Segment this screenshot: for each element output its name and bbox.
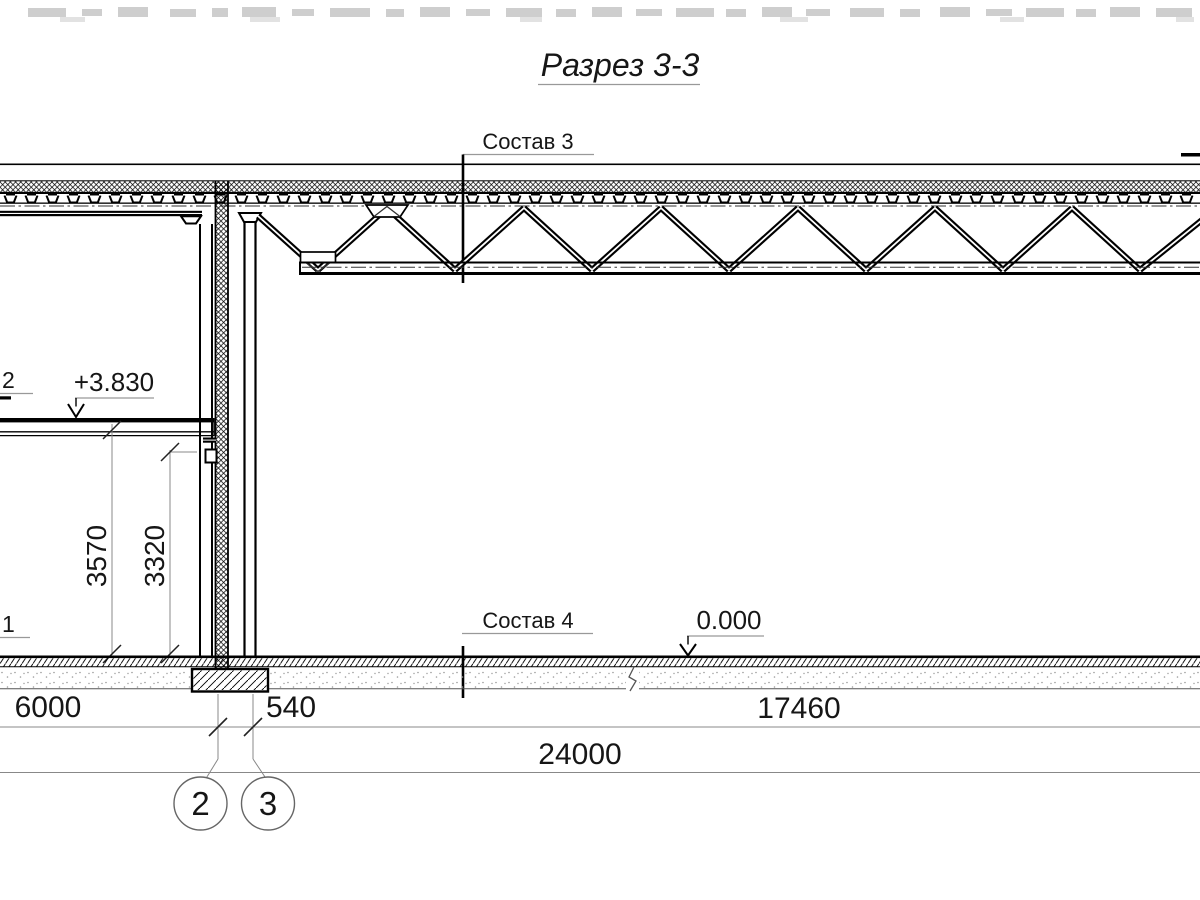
truss-bottom-chord — [300, 262, 1200, 276]
sostav-3-label: Состав 3 — [482, 129, 573, 154]
dim-wall-offset: 540 — [266, 691, 316, 724]
axis-3-leader — [253, 759, 266, 779]
floor-top-line — [0, 656, 1200, 659]
drawing-title: Разрез 3-3 — [538, 47, 700, 85]
vertical-dimension-3570: 3570 — [81, 421, 121, 663]
bottom-chord-bottom-line — [300, 272, 1200, 275]
dim-value: 3570 — [81, 525, 112, 587]
wall-panel — [216, 181, 229, 669]
mezzanine-slab — [0, 418, 217, 463]
vertical-dimension-3320: 3320 — [139, 443, 197, 663]
sostav-4-label: Состав 4 — [482, 608, 573, 633]
wall-hatch — [216, 181, 229, 669]
sostav-2-section-line — [0, 396, 11, 399]
scan-artifacts — [28, 7, 1194, 22]
elevation-mark-ground: 0.000 — [680, 605, 764, 656]
dim-value: 3320 — [139, 525, 170, 587]
title-text: Разрез 3-3 — [541, 47, 700, 83]
foundation-hatch — [194, 671, 267, 691]
floor-screed-hatch — [0, 658, 1200, 666]
beam-web-line — [0, 213, 202, 214]
dim-span-right: 17460 — [757, 692, 840, 725]
beam-end-bracket — [181, 216, 201, 223]
grid-axis-3: 3 — [242, 759, 295, 830]
elevation-mark-mezzanine: +3.830 — [68, 367, 154, 417]
dim-span-left: 6000 — [15, 691, 82, 724]
sostav-1-partial-label: 1 — [2, 611, 15, 637]
elevation-mezzanine-value: +3.830 — [74, 367, 154, 397]
roof-top-line — [0, 164, 1200, 166]
profiled-deck — [0, 194, 1200, 203]
section-drawing: Разрез 3-3 Состав 3 — [0, 0, 1200, 900]
elevation-ground-arrow — [680, 644, 696, 656]
bottom-chord-top-line — [300, 262, 1200, 264]
beam-seat-upper-core — [203, 440, 216, 441]
beam-seat-lower — [206, 450, 217, 463]
section-mark-sostav-2-clipped: 2 — [0, 367, 33, 400]
deck-bottom-line — [0, 203, 1200, 204]
drawing-svg: Разрез 3-3 Состав 3 — [0, 0, 1200, 900]
slab-top-band — [0, 418, 214, 422]
section-mark-sostav-1-clipped: 1 — [0, 611, 30, 638]
roof-truss — [258, 205, 1200, 275]
deck-top-flange-line — [0, 192, 1200, 194]
dimension-row-2: 24000 — [0, 738, 1200, 773]
ground-floor — [0, 656, 1200, 692]
roof-assembly — [0, 164, 1200, 207]
sostav-2-partial-label: 2 — [2, 367, 15, 393]
right-edge-section-tick — [1181, 153, 1200, 157]
roof-insulation-hatch — [0, 181, 1200, 192]
axis-3-label: 3 — [259, 785, 277, 822]
left-roof-beam — [0, 211, 202, 224]
insulation-top-line — [0, 180, 1200, 181]
apex-splice-plate — [366, 205, 408, 217]
axis-2-leader — [206, 759, 218, 779]
floor-base-stipple — [0, 668, 1200, 689]
axis-2-label: 2 — [191, 785, 209, 822]
truss-support-column — [245, 222, 256, 656]
dim-total: 24000 — [538, 738, 621, 771]
elevation-ground-value: 0.000 — [696, 605, 761, 635]
grid-axis-2: 2 — [174, 759, 227, 830]
